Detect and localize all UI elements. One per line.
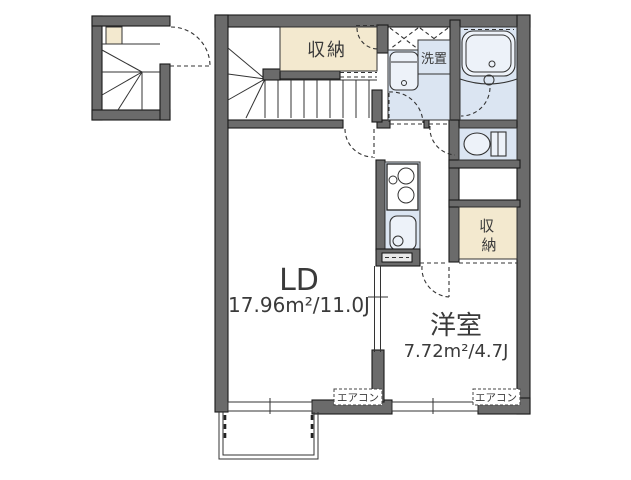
stair-landing-edge — [263, 69, 280, 80]
floorplan-canvas: 収納 洗置 — [0, 0, 631, 480]
storage-top: 収納 — [280, 26, 379, 78]
washroom: 洗置 — [388, 40, 450, 124]
balcony — [219, 412, 318, 459]
sink-icon — [390, 216, 416, 250]
stair-steps — [102, 44, 160, 110]
stair-landing-box — [106, 27, 122, 44]
kitchen-counter-hatch — [376, 249, 420, 266]
toilet-room — [429, 124, 517, 160]
ld-area-label: 17.96m²/11.0J — [228, 293, 370, 317]
window-western — [392, 398, 478, 414]
bathroom — [460, 27, 517, 120]
aircon-ld-label: エアコン — [337, 392, 379, 404]
entry-door-arc — [170, 27, 210, 66]
bathtub-icon — [462, 31, 515, 76]
room-labels: LD 17.96m²/11.0J 洋室 7.72m²/4.7J — [228, 263, 508, 362]
storage-top-label: 収納 — [307, 40, 347, 61]
partition-sliding — [368, 266, 388, 352]
ld-door-arc — [345, 129, 374, 158]
toilet-icon — [464, 132, 506, 156]
external-stairs — [92, 16, 210, 120]
aircon-ld-badge: エアコン — [334, 389, 382, 405]
stove-icon — [387, 164, 418, 210]
laundry-label: 洗置 — [421, 52, 447, 67]
storage-right-label: 収 納 — [479, 217, 499, 254]
floorplan-drawing: 収納 洗置 — [0, 0, 631, 480]
aircon-west-label: エアコン — [475, 392, 517, 404]
western-room-label: 洋室 — [430, 311, 482, 341]
window-ld — [228, 398, 312, 414]
washbasin-icon — [390, 52, 418, 90]
storage-right: 収 納 — [459, 207, 517, 263]
western-door-arc — [420, 263, 449, 297]
western-area-label: 7.72m²/4.7J — [404, 341, 509, 362]
aircon-west-badge: エアコン — [473, 389, 520, 405]
